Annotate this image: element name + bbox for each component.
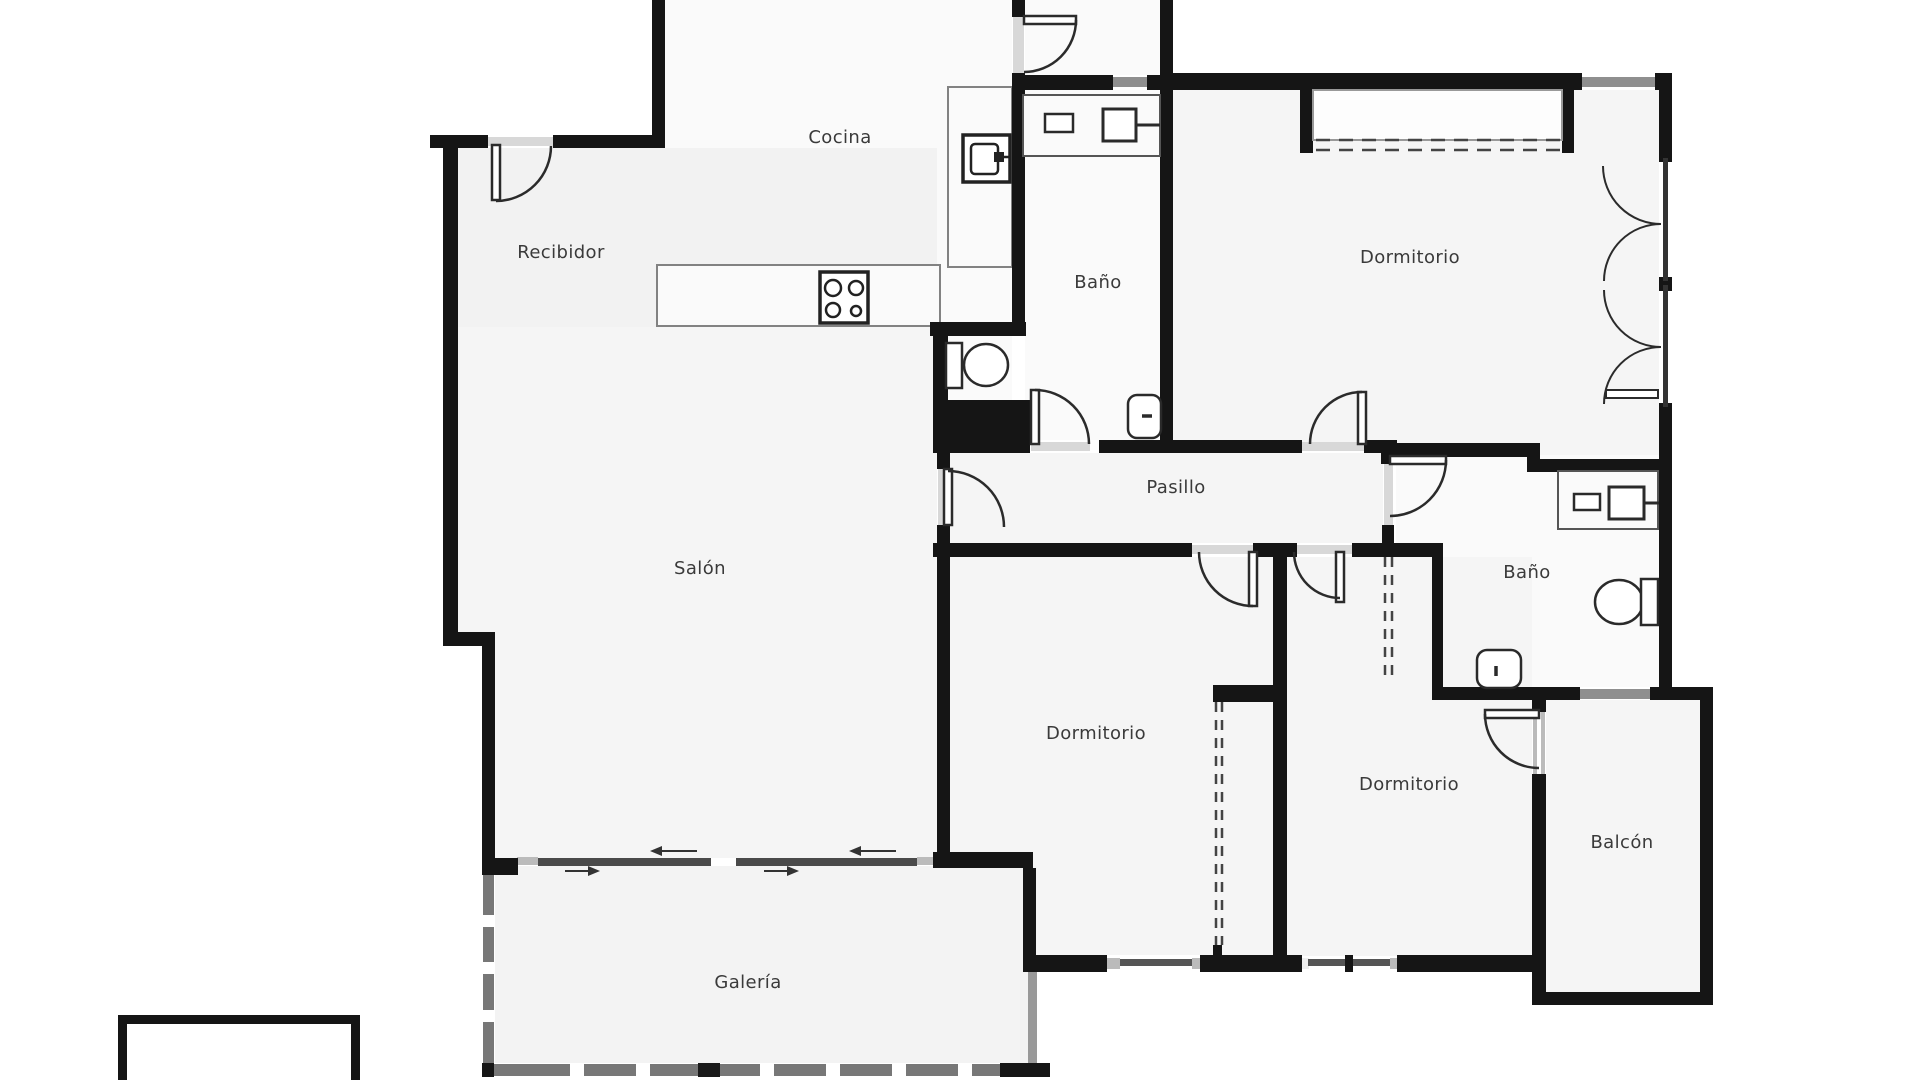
floor-salon-upper: [458, 327, 937, 646]
room-floors: [458, 0, 1700, 1063]
label-pasillo: Pasillo: [1146, 477, 1205, 498]
wardrobe-dormitorio-principal: [1313, 90, 1562, 140]
soap-tray-icon: [1045, 114, 1073, 132]
label-balcon: Balcón: [1590, 832, 1653, 853]
vanity-bano-derecho: [1558, 471, 1659, 529]
label-bano-superior: Baño: [1074, 272, 1121, 293]
label-dormitorio-principal: Dormitorio: [1360, 247, 1460, 268]
label-bano-derecho: Baño: [1503, 562, 1550, 583]
floor-pasillo: [950, 453, 1383, 543]
shaft-block: [933, 400, 1030, 453]
label-cocina: Cocina: [808, 127, 871, 148]
sliding-door-panel: [736, 858, 917, 866]
label-dormitorio-derecho: Dormitorio: [1359, 774, 1459, 795]
label-recibidor: Recibidor: [517, 242, 605, 263]
label-dormitorio-central: Dormitorio: [1046, 723, 1146, 744]
sliding-door-panel: [538, 858, 711, 866]
stove-icon: [820, 272, 868, 323]
annex-room-wall: [118, 1015, 360, 1024]
toilet-icon: [946, 343, 1008, 388]
sink-icon: [1103, 109, 1136, 141]
window-galeria-right: [1028, 972, 1037, 1063]
window-bano-bottom: [1580, 689, 1650, 699]
bidet-icon: [1477, 650, 1521, 688]
sink-icon: [1609, 487, 1644, 519]
floor-salon-lower: [495, 646, 937, 858]
soap-tray-icon: [1574, 494, 1600, 510]
floorplan-svg: Recibidor Cocina Baño Dormitorio Pasillo…: [0, 0, 1920, 1080]
vanity-bano-superior: [1023, 95, 1160, 156]
bidet-icon: [1128, 395, 1161, 438]
floorplan-canvas: Recibidor Cocina Baño Dormitorio Pasillo…: [0, 0, 1920, 1080]
toilet-icon: [1595, 579, 1658, 625]
floor-vestibule: [1025, 0, 1160, 75]
floor-dormitorio-derecho: [1287, 557, 1532, 956]
window-dormitorio-top: [1582, 77, 1655, 87]
floor-galeria: [495, 866, 1037, 1063]
counter-bottom: [657, 265, 940, 326]
label-galeria: Galería: [714, 972, 781, 993]
label-salon: Salón: [674, 558, 726, 579]
oven-icon: [963, 135, 1011, 182]
